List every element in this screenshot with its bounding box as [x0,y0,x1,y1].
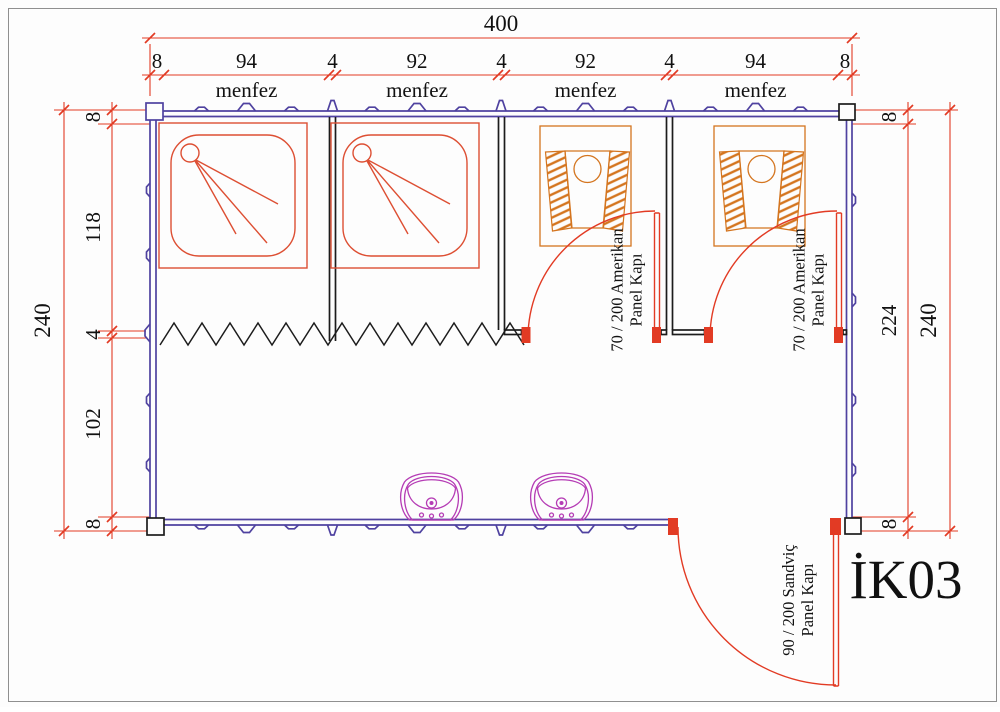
door-leaf [655,213,660,338]
vent-label: menfez [216,78,278,102]
shower-drain [353,144,371,162]
basin-drain-dot [430,501,434,505]
door-head-wc2-left [673,330,705,335]
basin-hole [560,514,564,518]
dim-left-segment: 8 [81,112,105,123]
corner-post-top-right [839,104,855,120]
dim-top-segment: 4 [327,49,338,73]
partition-shower-wc [499,117,505,330]
corner-post-bottom-right [845,518,861,534]
door-jamb-latch [522,327,531,343]
top-wall-bumps [195,101,808,112]
squat-toilet-2 [714,126,805,246]
inner-wall-lines [156,117,847,520]
dim-left-total: 240 [30,303,55,338]
dim-top-segment: 94 [236,49,258,73]
shower-tray-outer [159,123,307,268]
floor-plan-page: 400 8 94 4 92 4 92 4 94 8 menfez menfez … [0,0,1000,707]
dim-left-segment: 8 [81,519,105,530]
vent-label: menfez [725,78,787,102]
building-walls [145,101,861,536]
basin-hole [440,513,444,517]
dim-right-segment: 8 [877,519,901,530]
squat-toilet-1 [540,126,631,246]
dim-top-segment: 4 [496,49,507,73]
dimension-lines-right [852,102,958,539]
washbasin-1 [401,473,463,520]
basin-hole [570,513,574,517]
basin-hole [550,513,554,517]
dim-top-segment: 4 [664,49,675,73]
dim-left-segment: 102 [81,408,105,440]
dim-top-segment: 92 [575,49,596,73]
floor-plan-drawing: 400 8 94 4 92 4 92 4 94 8 menfez menfez … [0,0,1000,707]
door-leaf [837,213,842,338]
dimension-ticks-left [59,105,117,536]
shower-drain [181,144,199,162]
shower-tray-inner [343,135,467,256]
basin-hole [420,513,424,517]
dim-right-segment: 224 [877,304,901,336]
vent-label: menfez [386,78,448,102]
basin-hole [430,514,434,518]
door-jamb-latch [668,518,678,535]
dim-top-segment: 94 [745,49,767,73]
dimensions-right: 8 224 8 240 [852,102,958,539]
ext-door-label-line2: Panel Kapı [798,563,817,636]
dim-top-total: 400 [484,11,519,36]
dim-right-segment: 8 [877,112,901,123]
toilet-footrest-left [720,151,746,231]
toilet-drain [574,156,601,183]
shower-tray-inner [171,135,295,256]
wc-door-label-line1: 70 / 200 Amerikan [790,228,809,351]
dimension-lines-left [54,102,150,539]
dim-right-total: 240 [916,303,941,338]
shower-tray-1 [159,123,307,268]
outer-wall-lines [150,111,852,525]
toilet-drain [748,156,775,183]
dim-top-segment: 8 [840,49,851,73]
shower-spray-lines [195,160,278,243]
wc-door-label-line2: Panel Kapı [627,253,646,326]
corner-post-bottom-left [147,518,164,535]
basin-drain-dot [560,501,564,505]
shower-tray-2 [331,123,479,268]
plan-code: İK03 [849,549,962,610]
shower-spray-lines [367,160,450,243]
wc-door-label-line1: 70 / 200 Amerikan [608,228,627,351]
door-head-wc2-right [843,330,847,335]
dimensions-top: 400 8 94 4 92 4 92 4 94 8 menfez menfez … [142,11,860,102]
dim-top-segment: 8 [152,49,163,73]
door-head-wc1-left [505,330,522,335]
door-leaf [834,527,839,686]
dim-left-segment: 4 [81,329,105,340]
dimensions-left: 8 118 4 102 8 240 [30,102,150,539]
door-jamb-latch [704,327,713,343]
toilet-footrest-right [778,151,804,231]
door-head-wc1-right [661,330,667,335]
toilet-footrest-left [546,151,572,231]
toilet-footrest-right [604,151,630,231]
toilet-bowl [739,151,784,228]
dim-top-segment: 92 [407,49,428,73]
door-jamb-hinge [830,518,841,535]
toilet-bowl [565,151,610,228]
curtain-zigzag-line [160,323,524,345]
washbasin-2 [531,473,593,520]
corner-post-top-left [146,103,163,120]
wc-door-label-line2: Panel Kapı [809,253,828,326]
vent-label: menfez [555,78,617,102]
door-labels: 70 / 200 Amerikan Panel Kapı 70 / 200 Am… [608,228,828,655]
bottom-wall-bumps [195,525,638,535]
ext-door-label-line1: 90 / 200 Sandviç [779,544,798,655]
partition-wc-1-2 [667,117,673,330]
shower-tray-outer [331,123,479,268]
dim-left-segment: 118 [81,212,105,243]
